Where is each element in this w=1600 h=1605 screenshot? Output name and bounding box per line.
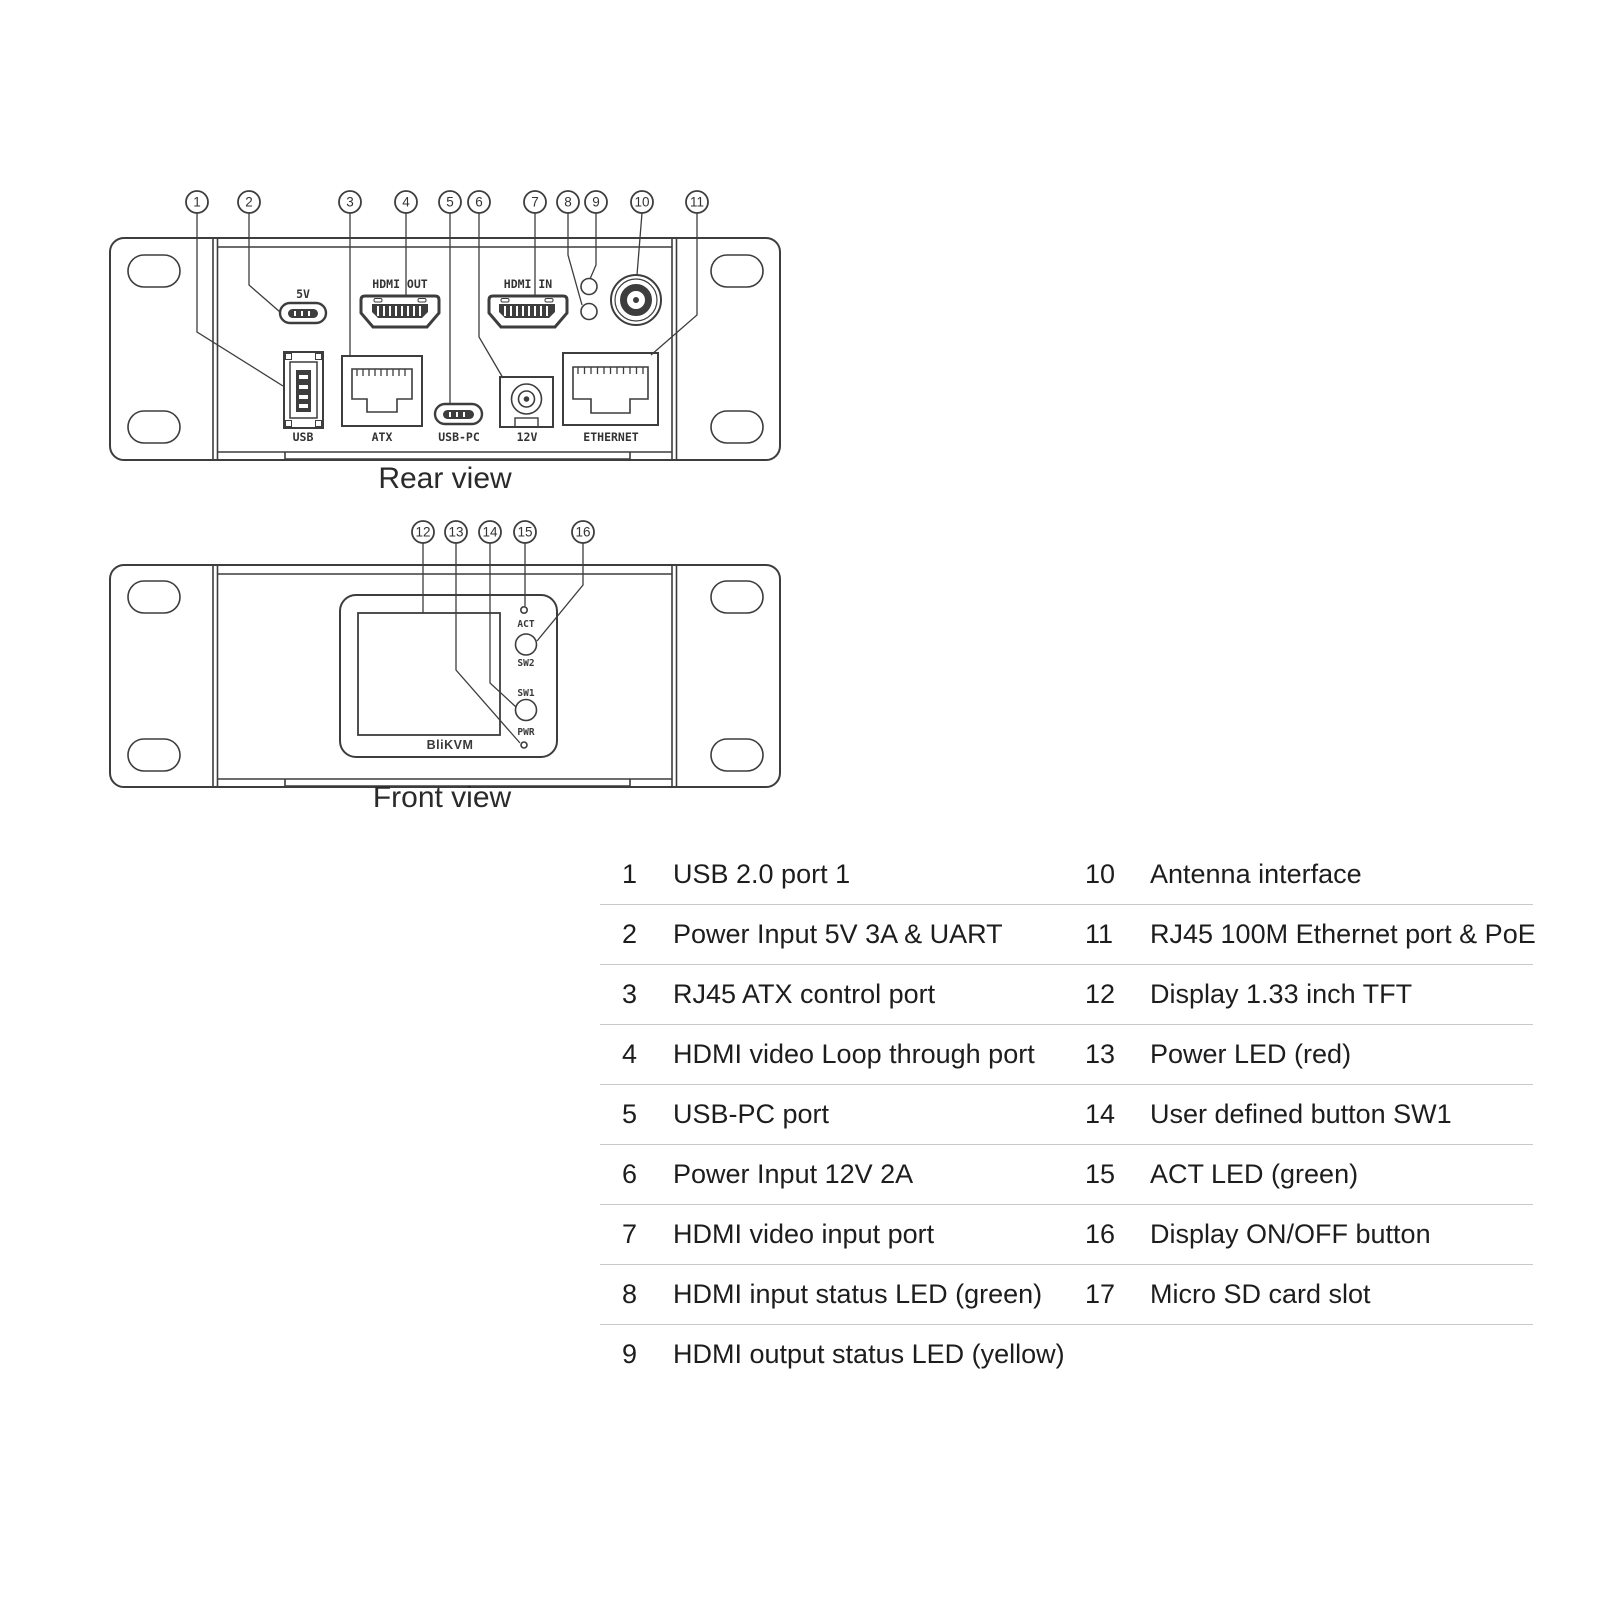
sw1-label: SW1	[517, 688, 534, 699]
legend-row: 3 RJ45 ATX control port 12 Display 1.33 …	[600, 965, 1533, 1025]
sw2-button[interactable]	[516, 634, 537, 655]
legend-label: HDMI output status LED (yellow)	[673, 1339, 1085, 1370]
rear-chassis-outline	[110, 238, 780, 460]
atx-rj45-port	[342, 356, 422, 426]
legend-num: 10	[1085, 859, 1150, 890]
callout-12: 12	[415, 525, 430, 540]
legend-num: 16	[1085, 1219, 1150, 1250]
sw1-button[interactable]	[516, 700, 537, 721]
legend-num: 1	[622, 859, 673, 890]
legend-label: HDMI video input port	[673, 1219, 1085, 1250]
legend-label: HDMI input status LED (green)	[673, 1279, 1085, 1310]
sw2-label: SW2	[517, 658, 534, 669]
legend-table: 1 USB 2.0 port 1 10 Antenna interface 2 …	[600, 845, 1533, 1384]
front-callout-leaders	[423, 543, 583, 743]
callout-13: 13	[448, 525, 463, 540]
antenna-connector	[611, 275, 661, 325]
port-label-ethernet: ETHERNET	[583, 430, 638, 444]
legend-row: 5 USB-PC port 14 User defined button SW1	[600, 1085, 1533, 1145]
legend-num: 11	[1085, 919, 1150, 950]
front-mount-hole	[128, 581, 180, 613]
legend-num: 4	[622, 1039, 673, 1070]
rear-mount-hole	[128, 255, 180, 287]
port-label-hdmi-in: HDMI IN	[504, 277, 553, 291]
power-12v-jack	[500, 377, 553, 427]
callout-10: 10	[634, 195, 649, 210]
legend-num: 13	[1085, 1039, 1150, 1070]
port-label-5v: 5V	[296, 287, 310, 301]
legend-num: 14	[1085, 1099, 1150, 1130]
hdmi-input-status-led	[581, 304, 597, 320]
diagram-page: 1 2 3 4 5 6 7 8 9 10 11 5V HDMI OUT HDMI…	[0, 0, 1600, 1600]
legend-row: 1 USB 2.0 port 1 10 Antenna interface	[600, 845, 1533, 905]
legend-label: USB-PC port	[673, 1099, 1085, 1130]
legend-label: Display 1.33 inch TFT	[1150, 979, 1533, 1010]
front-mount-hole	[711, 739, 763, 771]
legend-label: Antenna interface	[1150, 859, 1533, 890]
legend-label: Display ON/OFF button	[1150, 1219, 1533, 1250]
callout-6: 6	[475, 195, 483, 210]
legend-label: RJ45 ATX control port	[673, 979, 1085, 1010]
callout-7: 7	[531, 195, 539, 210]
front-callout-numbers: 12 13 14 15 16	[415, 525, 590, 540]
legend-num: 15	[1085, 1159, 1150, 1190]
callout-16: 16	[575, 525, 590, 540]
legend-num: 5	[622, 1099, 673, 1130]
legend-label: Power LED (red)	[1150, 1039, 1533, 1070]
legend-row: 7 HDMI video input port 16 Display ON/OF…	[600, 1205, 1533, 1265]
tft-display	[358, 613, 500, 735]
usb-c-5v-port	[280, 303, 326, 323]
pwr-led	[521, 742, 527, 748]
legend-num: 17	[1085, 1279, 1150, 1310]
rear-mount-hole	[128, 411, 180, 443]
legend-label: Power Input 5V 3A & UART	[673, 919, 1085, 950]
legend-label: Power Input 12V 2A	[673, 1159, 1085, 1190]
rear-mount-hole	[711, 411, 763, 443]
legend-row: 6 Power Input 12V 2A 15 ACT LED (green)	[600, 1145, 1533, 1205]
legend-num: 7	[622, 1219, 673, 1250]
legend-num: 9	[622, 1339, 673, 1370]
port-label-hdmi-out: HDMI OUT	[372, 277, 427, 291]
port-label-12v: 12V	[517, 430, 538, 444]
ethernet-rj45-port	[563, 353, 658, 425]
port-label-atx: ATX	[372, 430, 393, 444]
legend-num: 6	[622, 1159, 673, 1190]
brand-label: BliKVM	[427, 738, 474, 752]
legend-label: ACT LED (green)	[1150, 1159, 1533, 1190]
legend-label: Micro SD card slot	[1150, 1279, 1533, 1310]
front-panel-labels: ACT SW2 SW1 PWR BliKVM	[427, 619, 535, 752]
legend-row: 4 HDMI video Loop through port 13 Power …	[600, 1025, 1533, 1085]
front-view-caption: Front view	[373, 781, 512, 814]
callout-8: 8	[564, 195, 572, 210]
port-label-usb: USB	[293, 430, 314, 444]
legend-num: 3	[622, 979, 673, 1010]
callout-9: 9	[592, 195, 600, 210]
rear-callout-leaders	[197, 213, 697, 404]
legend-row: 8 HDMI input status LED (green) 17 Micro…	[600, 1265, 1533, 1325]
act-label: ACT	[517, 619, 534, 630]
legend-row: 2 Power Input 5V 3A & UART 11 RJ45 100M …	[600, 905, 1533, 965]
front-mount-hole	[711, 581, 763, 613]
rear-callout-numbers: 1 2 3 4 5 6 7 8 9 10 11	[193, 195, 704, 210]
legend-num: 8	[622, 1279, 673, 1310]
callout-3: 3	[346, 195, 354, 210]
callout-11: 11	[690, 195, 704, 210]
front-callout-circles	[412, 521, 594, 543]
legend-label: USB 2.0 port 1	[673, 859, 1085, 890]
act-led	[521, 607, 527, 613]
hdmi-output-status-led	[581, 279, 597, 295]
front-mount-hole	[128, 739, 180, 771]
callout-14: 14	[482, 525, 498, 540]
port-label-usb-pc: USB-PC	[438, 430, 480, 444]
legend-label: RJ45 100M Ethernet port & PoE	[1150, 919, 1536, 950]
hdmi-out-port	[361, 296, 439, 327]
legend-label: User defined button SW1	[1150, 1099, 1533, 1130]
rear-mount-hole	[711, 255, 763, 287]
usb-a-port	[284, 352, 323, 428]
callout-5: 5	[446, 195, 454, 210]
legend-label: HDMI video Loop through port	[673, 1039, 1085, 1070]
front-chassis-outline	[110, 565, 780, 787]
callout-1: 1	[193, 195, 201, 210]
rear-view-drawing	[110, 191, 780, 460]
hdmi-in-port	[489, 296, 567, 327]
legend-num: 12	[1085, 979, 1150, 1010]
legend-num: 2	[622, 919, 673, 950]
pwr-label: PWR	[517, 727, 534, 738]
rear-view-caption: Rear view	[378, 462, 512, 495]
callout-4: 4	[402, 195, 410, 210]
legend-row: 9 HDMI output status LED (yellow)	[600, 1325, 1533, 1384]
callout-15: 15	[517, 525, 532, 540]
usb-pc-port	[435, 404, 482, 424]
callout-2: 2	[245, 195, 253, 210]
